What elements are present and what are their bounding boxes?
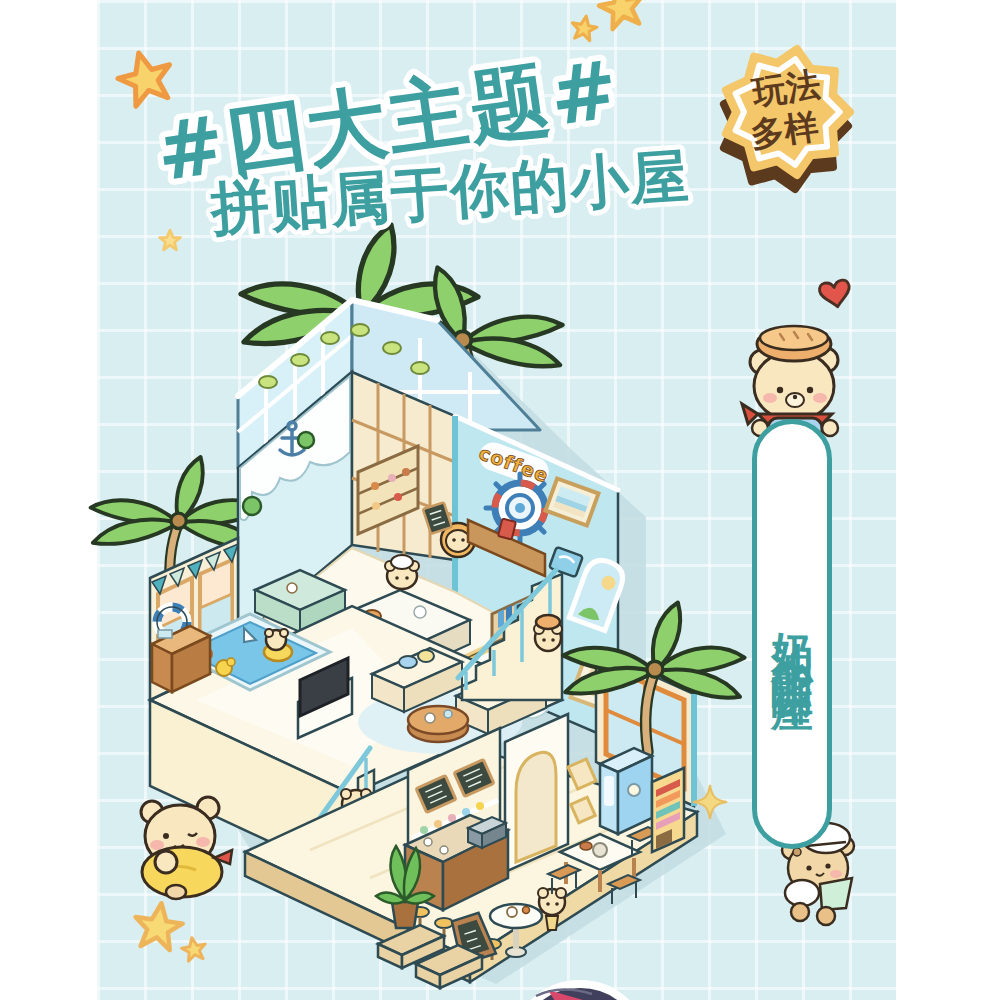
coffee-table	[408, 706, 468, 742]
heart-icon	[818, 279, 852, 309]
pool-bear	[264, 629, 292, 661]
top-floor-bear-chef	[385, 555, 419, 589]
title-block: #四大主题# 拼贴属于你的小屋	[151, 42, 692, 243]
stairs-bear-bread	[534, 615, 562, 651]
poster-art: coffee	[0, 0, 1000, 1000]
vending-machine	[652, 768, 684, 852]
bottom-sticker	[516, 984, 644, 1000]
side-banner-text: 奶油小熊咖啡屋	[764, 599, 820, 669]
duck-ring-bear	[141, 797, 232, 899]
fridge	[600, 748, 652, 834]
badge-starburst: 玩法 多样	[724, 49, 850, 189]
side-banner: 奶油小熊咖啡屋	[752, 419, 832, 849]
